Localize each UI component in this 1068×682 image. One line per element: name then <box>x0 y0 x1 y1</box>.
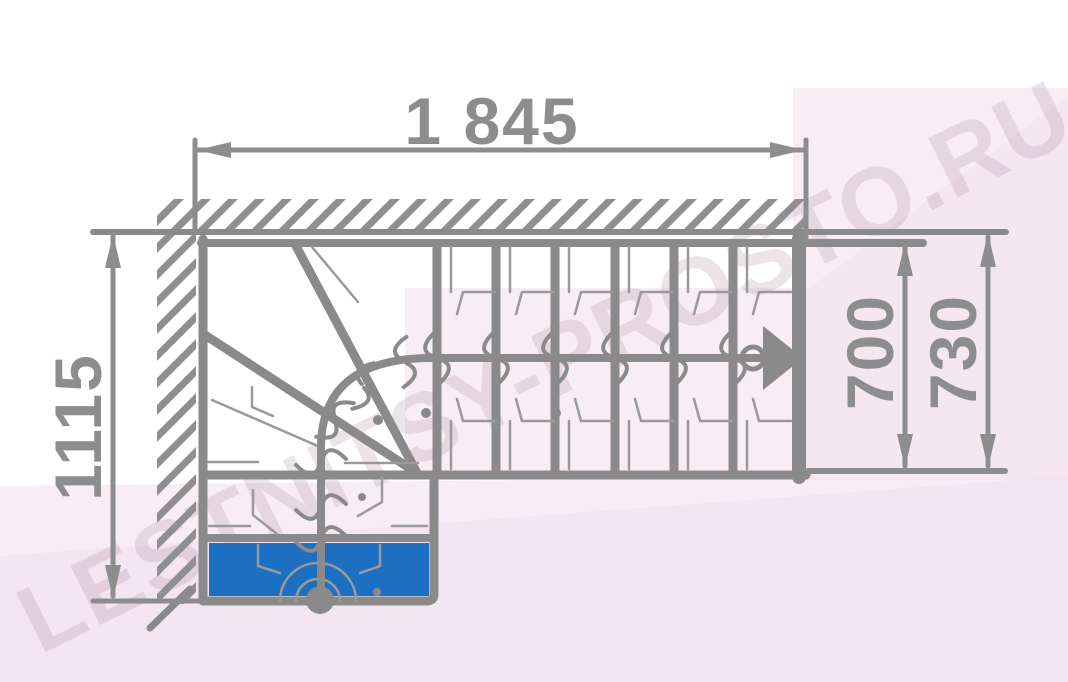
dim-label-width-outer: 730 <box>916 294 990 410</box>
top-wall-hatch <box>157 199 806 233</box>
dim-label-total-length: 1 845 <box>404 84 579 158</box>
dim-label-width-inner: 700 <box>833 294 907 410</box>
dim-arrow-left <box>197 142 231 158</box>
stair-plan-drawing: LESTNITSY-PROSTO.RU <box>0 0 1068 682</box>
dim-arrow-up <box>105 234 121 268</box>
stair-plan-screenshot: LESTNITSY-PROSTO.RU <box>0 0 1068 682</box>
dim-label-total-depth: 1115 <box>41 353 115 501</box>
left-wall-hatch <box>157 199 196 604</box>
walk-start-point <box>306 586 334 614</box>
